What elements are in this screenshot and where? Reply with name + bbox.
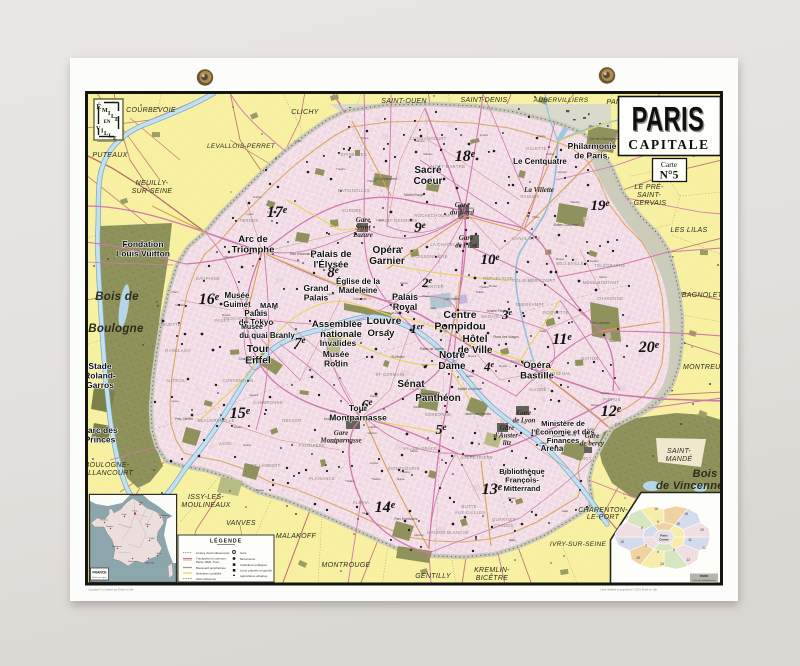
- svg-text:Halle: Halle: [509, 538, 516, 542]
- svg-text:VILLETTE: VILLETTE: [525, 146, 547, 151]
- svg-text:PLAISANCE: PLAISANCE: [309, 476, 335, 481]
- svg-text:Mairie: Mairie: [362, 511, 370, 515]
- svg-text:MAISON-BLANCHE: MAISON-BLANCHE: [427, 530, 469, 535]
- svg-text:Square: Square: [600, 391, 609, 395]
- svg-text:St-Michel: St-Michel: [391, 355, 405, 359]
- svg-text:Mairie: Mairie: [609, 339, 617, 343]
- svg-text:FRANCE: FRANCE: [92, 571, 107, 575]
- svg-text:Musée Picasso: Musée Picasso: [487, 309, 509, 313]
- svg-text:CONVENTION: CONVENTION: [223, 378, 254, 383]
- svg-text:Pompidou: Pompidou: [434, 321, 485, 333]
- svg-text:CAPITALE: CAPITALE: [628, 137, 710, 152]
- svg-text:Théâtre: Théâtre: [367, 179, 377, 183]
- svg-text:Musée: Musée: [489, 284, 498, 288]
- svg-text:POISSONNIÈRE: POISSONNIÈRE: [412, 254, 447, 259]
- svg-text:TÉLÉGRAPHE: TÉLÉGRAPHE: [594, 263, 625, 268]
- svg-text:Agricultures urbaines: Agricultures urbaines: [240, 574, 268, 578]
- svg-text:Dame: Dame: [438, 361, 466, 372]
- svg-text:Nice: Nice: [157, 553, 162, 555]
- svg-text:Centre: Centre: [659, 538, 669, 542]
- svg-text:Marché: Marché: [570, 200, 580, 204]
- svg-text:Princes: Princes: [85, 435, 116, 445]
- svg-text:BELLEVILLE: BELLEVILLE: [556, 261, 583, 266]
- svg-text:LÉGENDE: LÉGENDE: [210, 537, 242, 545]
- svg-text:Halle: Halle: [422, 363, 429, 367]
- svg-text:Palais de Justice: Palais de Justice: [420, 347, 444, 351]
- svg-text:Invalides: Invalides: [324, 417, 337, 421]
- svg-text:MALAKOFF: MALAKOFF: [276, 533, 317, 540]
- svg-text:Palais: Palais: [370, 394, 378, 398]
- svg-text:14: 14: [660, 562, 664, 566]
- svg-text:Boulevard périphérique: Boulevard périphérique: [196, 566, 226, 570]
- svg-text:Lycée: Lycée: [246, 212, 254, 216]
- svg-text:Théâtre: Théâtre: [479, 285, 489, 289]
- svg-text:Place: Place: [362, 136, 369, 140]
- svg-text:Louvre: Louvre: [366, 315, 401, 327]
- svg-text:BAGNOLET: BAGNOLET: [682, 292, 723, 299]
- svg-text:11: 11: [688, 538, 692, 542]
- svg-text:Centre: Centre: [443, 309, 476, 321]
- svg-text:Palais: Palais: [392, 292, 418, 302]
- svg-text:Les Halles: Les Halles: [445, 297, 460, 301]
- svg-text:5: 5: [673, 548, 675, 552]
- svg-text:Opéra: Opéra: [523, 360, 551, 371]
- svg-text:Marché: Marché: [350, 417, 360, 421]
- svg-text:La Villette: La Villette: [523, 186, 554, 194]
- svg-text:IVRY-SUR-SEINE: IVRY-SUR-SEINE: [550, 541, 607, 548]
- svg-text:Métro, RER, Tram: Métro, RER, Tram: [196, 560, 220, 564]
- svg-text:LEVALLOIS-PERRET: LEVALLOIS-PERRET: [207, 143, 276, 150]
- svg-text:Lyon: Lyon: [150, 538, 155, 540]
- svg-text:LA MUETTE: LA MUETTE: [155, 322, 181, 327]
- svg-text:7: 7: [645, 544, 647, 548]
- svg-text:l'Élysée: l'Élysée: [313, 260, 348, 271]
- svg-text:SAINT-OUEN: SAINT-OUEN: [381, 98, 427, 105]
- svg-text:Grand: Grand: [303, 283, 328, 293]
- svg-text:BATIGNOLLES: BATIGNOLLES: [338, 188, 370, 193]
- svg-text:Théâtre: Théâtre: [371, 477, 381, 481]
- svg-text:Sénat: Sénat: [397, 379, 425, 390]
- svg-text:Mairie: Mairie: [538, 134, 546, 138]
- svg-text:de bercy: de bercy: [580, 440, 605, 448]
- svg-text:Square: Square: [249, 393, 258, 397]
- svg-text:de l'Est: de l'Est: [455, 242, 478, 250]
- svg-text:13: 13: [686, 558, 690, 562]
- svg-text:ISSY-LES-: ISSY-LES-: [188, 494, 224, 501]
- svg-text:ST-GERMAIN: ST-GERMAIN: [375, 372, 404, 377]
- svg-text:JAVEL: JAVEL: [219, 441, 233, 446]
- svg-text:Musée: Musée: [323, 349, 350, 359]
- svg-text:Roland-: Roland-: [84, 371, 116, 381]
- svg-text:Sacré: Sacré: [414, 165, 442, 176]
- svg-text:CHARONNE: CHARONNE: [597, 296, 623, 301]
- svg-text:CHINOIS: CHINOIS: [494, 523, 514, 528]
- svg-text:Aires piétonnes: Aires piétonnes: [196, 577, 216, 581]
- svg-text:Parc Citroën: Parc Citroën: [175, 417, 193, 421]
- svg-text:QUARTIER: QUARTIER: [492, 517, 516, 522]
- svg-text:GENTILLY: GENTILLY: [415, 573, 452, 580]
- svg-text:ALÉSIA: ALÉSIA: [353, 500, 369, 505]
- svg-text:Boulogne: Boulogne: [88, 323, 144, 335]
- svg-text:Musée: Musée: [468, 354, 477, 358]
- svg-text:Orsay: Orsay: [368, 328, 396, 339]
- svg-text:Tour: Tour: [247, 343, 270, 355]
- svg-text:É: É: [97, 103, 102, 111]
- svg-text:Institut: Institut: [370, 461, 378, 465]
- svg-text:BUTTE-: BUTTE-: [462, 504, 479, 509]
- svg-text:de Vincennes: de Vincennes: [656, 480, 730, 492]
- svg-text:AUTEUIL: AUTEUIL: [166, 378, 186, 383]
- svg-text:LES LILAS: LES LILAS: [671, 227, 708, 234]
- svg-text:Le Centquatre: Le Centquatre: [513, 157, 567, 166]
- svg-text:Mairie: Mairie: [599, 275, 607, 279]
- svg-text:Carte: Carte: [661, 160, 678, 169]
- svg-text:Palais: Palais: [400, 281, 408, 285]
- svg-text:TERNES: TERNES: [240, 218, 259, 223]
- svg-text:Musée: Musée: [508, 496, 517, 500]
- svg-text:Caen: Caen: [121, 514, 127, 516]
- svg-text:CANAL ST-M: CANAL ST-M: [512, 236, 540, 241]
- svg-text:Place: Place: [423, 294, 430, 298]
- svg-text:Montparnasse: Montparnasse: [319, 437, 361, 445]
- svg-text:15: 15: [636, 556, 640, 560]
- svg-text:10: 10: [676, 522, 680, 526]
- svg-text:Triomphe: Triomphe: [232, 245, 275, 256]
- svg-text:Rodin: Rodin: [324, 359, 348, 369]
- svg-text:Square: Square: [328, 440, 337, 444]
- svg-text:de Paris.: de Paris.: [574, 151, 609, 161]
- svg-text:Arena: Arena: [541, 444, 564, 453]
- svg-text:16: 16: [620, 540, 624, 544]
- svg-text:Parc Monceau: Parc Monceau: [290, 252, 311, 256]
- svg-text:EN: EN: [104, 120, 111, 125]
- svg-text:FOLIE-MÉRICOURT: FOLIE-MÉRICOURT: [512, 278, 555, 283]
- svg-text:EUROPE: EUROPE: [342, 208, 361, 213]
- svg-text:Bastille: Bastille: [520, 371, 554, 382]
- svg-text:Philarmonie: Philarmonie: [568, 141, 617, 151]
- svg-text:CHARENTON-: CHARENTON-: [578, 507, 628, 514]
- svg-text:Palais: Palais: [476, 290, 484, 294]
- svg-text:20: 20: [699, 528, 704, 532]
- svg-text:GERVAIS: GERVAIS: [634, 200, 667, 207]
- svg-text:NECKER: NECKER: [282, 418, 301, 423]
- svg-text:VANVES: VANVES: [226, 520, 256, 527]
- svg-text:Square: Square: [275, 335, 284, 339]
- svg-text:Bois: Bois: [692, 468, 717, 480]
- svg-text:RANELAGH: RANELAGH: [165, 348, 190, 353]
- svg-text:Institut: Institut: [480, 133, 488, 137]
- svg-text:Lycée: Lycée: [376, 218, 384, 222]
- svg-text:Fondation: Fondation: [122, 239, 163, 249]
- svg-text:NATION: NATION: [581, 356, 598, 361]
- svg-text:Institut du Monde: Institut du Monde: [458, 387, 483, 391]
- svg-text:N°5: N°5: [660, 170, 679, 182]
- svg-text:CLICHY: CLICHY: [291, 109, 320, 116]
- svg-text:ALIGRE: ALIGRE: [529, 387, 546, 392]
- svg-text:Jardin des Plantes: Jardin des Plantes: [465, 412, 492, 416]
- svg-text:Toulouse: Toulouse: [128, 561, 138, 563]
- svg-text:Lieux culturels et sportifs: Lieux culturels et sportifs: [240, 569, 272, 573]
- svg-text:MANDÉ: MANDÉ: [666, 454, 693, 463]
- svg-text:PARIS: PARIS: [700, 574, 708, 578]
- svg-text:Marché: Marché: [175, 303, 185, 307]
- svg-text:litz: litz: [503, 439, 512, 447]
- svg-text:SAINT-GEORGES: SAINT-GEORGES: [379, 218, 418, 223]
- svg-text:SORBONNE: SORBONNE: [425, 412, 451, 417]
- svg-text:Halle: Halle: [430, 306, 437, 310]
- svg-text:Lycée: Lycée: [327, 292, 335, 296]
- svg-text:Buttes Chaumont: Buttes Chaumont: [554, 223, 579, 227]
- svg-text:Hôpital: Hôpital: [465, 454, 474, 458]
- svg-text:SUR-SEINE: SUR-SEINE: [132, 188, 173, 195]
- svg-text:BICÊTRE: BICÊTRE: [476, 573, 508, 582]
- svg-text:KREMLIN-: KREMLIN-: [474, 567, 510, 574]
- svg-text:L: L: [104, 131, 108, 137]
- svg-text:Institut: Institut: [253, 195, 261, 199]
- svg-text:Monuments: Monuments: [240, 557, 256, 561]
- svg-text:Théâtre: Théâtre: [345, 479, 355, 483]
- svg-text:ROQUETTE: ROQUETTE: [543, 310, 569, 315]
- svg-text:Écalé par région: Écalé par région: [92, 576, 107, 579]
- svg-text:Marseille: Marseille: [146, 562, 156, 565]
- svg-text:Luxembourg: Luxembourg: [419, 392, 437, 396]
- svg-text:Hôpital: Hôpital: [558, 170, 567, 174]
- svg-text:19: 19: [684, 512, 688, 516]
- svg-text:Square: Square: [589, 259, 598, 263]
- svg-text:Institut: Institut: [546, 152, 554, 156]
- svg-text:Itinéraires cyclables: Itinéraires cyclables: [196, 571, 222, 575]
- svg-text:du quai Branly: du quai Branly: [239, 331, 295, 340]
- svg-text:9: 9: [657, 520, 659, 524]
- svg-text:Musée: Musée: [553, 434, 562, 438]
- svg-text:12: 12: [702, 546, 706, 550]
- svg-text:SAINT-DENIS: SAINT-DENIS: [461, 97, 508, 104]
- svg-text:MARAIS: MARAIS: [481, 314, 499, 319]
- svg-text:Nantes: Nantes: [107, 525, 115, 528]
- svg-text:MOULINEAUX: MOULINEAUX: [181, 502, 230, 509]
- svg-text:BEL-AIR: BEL-AIR: [615, 422, 633, 427]
- svg-text:Carte des arrondissements: Carte des arrondissements: [693, 579, 716, 582]
- svg-text:Marché: Marché: [414, 533, 424, 537]
- svg-text:Strasbourg: Strasbourg: [159, 514, 170, 517]
- svg-text:Théâtre: Théâtre: [400, 470, 410, 474]
- svg-text:Musée: Musée: [222, 313, 231, 317]
- svg-text:DANUBE: DANUBE: [520, 194, 539, 199]
- svg-text:CAMBRONNE: CAMBRONNE: [253, 400, 283, 405]
- svg-text:Hôpital: Hôpital: [368, 431, 377, 435]
- svg-text:COURBEVOIE: COURBEVOIE: [126, 107, 176, 114]
- svg-text:Palais de: Palais de: [310, 249, 351, 260]
- svg-text:AUBERVILLIERS: AUBERVILLIERS: [533, 97, 589, 104]
- svg-text:Limites d'arrondissements: Limites d'arrondissements: [196, 551, 230, 555]
- svg-text:PARIS: PARIS: [632, 100, 705, 138]
- svg-text:Marché: Marché: [423, 152, 433, 156]
- svg-text:Parc Montsouris: Parc Montsouris: [394, 517, 417, 521]
- svg-text:Lazare: Lazare: [352, 231, 373, 239]
- svg-text:AUX-CAILLES: AUX-CAILLES: [455, 510, 486, 515]
- svg-text:Lycée: Lycée: [171, 399, 179, 403]
- svg-text:6: 6: [657, 550, 659, 554]
- svg-text:Moulin Rouge: Moulin Rouge: [404, 193, 424, 197]
- svg-text:MÉNILMONTANT: MÉNILMONTANT: [583, 280, 620, 285]
- svg-text:MONTROUGE: MONTROUGE: [322, 562, 371, 569]
- svg-text:Mairie: Mairie: [369, 425, 377, 429]
- svg-text:Notre: Notre: [439, 350, 466, 361]
- svg-text:17: 17: [624, 516, 628, 520]
- svg-text:Halle: Halle: [540, 329, 547, 333]
- svg-text:Musée: Musée: [556, 257, 565, 261]
- svg-text:18: 18: [654, 507, 658, 511]
- svg-text:Mitterrand: Mitterrand: [504, 484, 541, 493]
- svg-text:SAINT-: SAINT-: [637, 192, 661, 199]
- svg-text:Champ de Mars: Champ de Mars: [239, 357, 262, 361]
- svg-text:Église: Église: [397, 476, 405, 481]
- svg-text:Bercy: Bercy: [568, 433, 577, 437]
- svg-text:Halle: Halle: [562, 509, 569, 513]
- svg-text:Stade: Stade: [88, 361, 111, 371]
- svg-text:E: E: [115, 117, 119, 123]
- svg-text:Marché: Marché: [415, 139, 425, 143]
- svg-text:Palais: Palais: [413, 405, 421, 409]
- svg-text:Musée: Musée: [499, 364, 508, 368]
- svg-text:ÉPINETTES: ÉPINETTES: [341, 152, 367, 157]
- svg-text:Madeleine: Madeleine: [339, 286, 378, 295]
- svg-text:Cité des Sciences: Cité des Sciences: [589, 137, 615, 141]
- svg-text:Mairie: Mairie: [410, 449, 418, 453]
- svg-text:L: L: [109, 134, 113, 140]
- svg-text:Théâtre: Théâtre: [464, 206, 474, 210]
- svg-text:SAINT-: SAINT-: [667, 448, 691, 455]
- svg-text:VAL-DE-GRÂCE: VAL-DE-GRÂCE: [403, 446, 438, 451]
- svg-text:Institut: Institut: [267, 210, 275, 214]
- svg-text:Musée: Musée: [225, 291, 250, 300]
- svg-text:Institut: Institut: [243, 443, 251, 447]
- svg-text:Halle: Halle: [330, 409, 337, 413]
- svg-text:BOULOGNE-: BOULOGNE-: [85, 462, 130, 469]
- svg-text:SAINT-LAMBERT: SAINT-LAMBERT: [243, 463, 280, 468]
- svg-text:Bordeaux: Bordeaux: [112, 545, 122, 548]
- svg-text:Louis Vuitton: Louis Vuitton: [116, 249, 170, 259]
- svg-text:Marché: Marché: [224, 255, 234, 259]
- svg-text:Palais: Palais: [540, 441, 548, 445]
- svg-text:Musée: Musée: [591, 403, 600, 407]
- svg-text:Place des Vosges: Place des Vosges: [493, 335, 519, 339]
- svg-text:Arc de: Arc de: [238, 234, 268, 245]
- svg-text:Opéra: Opéra: [373, 245, 402, 256]
- svg-text:8: 8: [641, 526, 643, 530]
- svg-text:Église: Église: [466, 373, 474, 378]
- svg-text:Garnier: Garnier: [369, 256, 405, 267]
- svg-text:Lycée: Lycée: [294, 139, 302, 143]
- svg-text:BILLANCOURT: BILLANCOURT: [81, 470, 134, 477]
- svg-text:Musée: Musée: [241, 324, 263, 331]
- svg-text:Musée: Musée: [392, 311, 401, 315]
- svg-text:Musée: Musée: [256, 488, 265, 492]
- svg-text:Coeur: Coeur: [414, 176, 443, 187]
- svg-text:PICPUS: PICPUS: [603, 397, 620, 402]
- svg-text:Palais: Palais: [304, 293, 329, 303]
- svg-text:Dijon: Dijon: [146, 524, 152, 526]
- svg-text:Institutions publiques: Institutions publiques: [240, 563, 268, 567]
- svg-text:Rennes: Rennes: [100, 520, 108, 522]
- svg-text:Théâtre: Théâtre: [336, 167, 346, 171]
- svg-text:de Lyon: de Lyon: [513, 417, 536, 425]
- svg-text:Invalides: Invalides: [320, 338, 357, 348]
- svg-text:NEUILLY-: NEUILLY-: [136, 180, 169, 187]
- svg-text:DAUPHINE: DAUPHINE: [196, 276, 220, 281]
- svg-text:LE PRÉ-: LE PRÉ-: [634, 182, 664, 191]
- svg-text:Gare: Gare: [240, 551, 247, 555]
- svg-text:Square: Square: [233, 425, 242, 429]
- svg-text:Place: Place: [172, 290, 179, 294]
- svg-text:OBERKAMPF: OBERKAMPF: [516, 302, 545, 307]
- svg-text:LE-PORT: LE-PORT: [587, 514, 620, 521]
- svg-text:Garros: Garros: [86, 380, 114, 390]
- svg-text:Hôtel: Hôtel: [463, 334, 488, 345]
- svg-text:Place: Place: [533, 215, 540, 219]
- svg-text:RÉPUBLIQUE: RÉPUBLIQUE: [483, 276, 513, 281]
- svg-text:Bois de: Bois de: [95, 291, 139, 303]
- svg-text:Guimet: Guimet: [223, 300, 251, 309]
- svg-text:Musée: Musée: [257, 310, 266, 314]
- svg-text:Père Lachaise: Père Lachaise: [590, 321, 611, 325]
- svg-text:Église: Église: [587, 426, 595, 431]
- svg-text:Église de la: Église de la: [336, 277, 381, 286]
- svg-text:BERCY: BERCY: [576, 456, 592, 461]
- svg-text:ROCHECHOUART: ROCHECHOUART: [414, 213, 453, 218]
- svg-text:PUTEAUX: PUTEAUX: [92, 152, 127, 159]
